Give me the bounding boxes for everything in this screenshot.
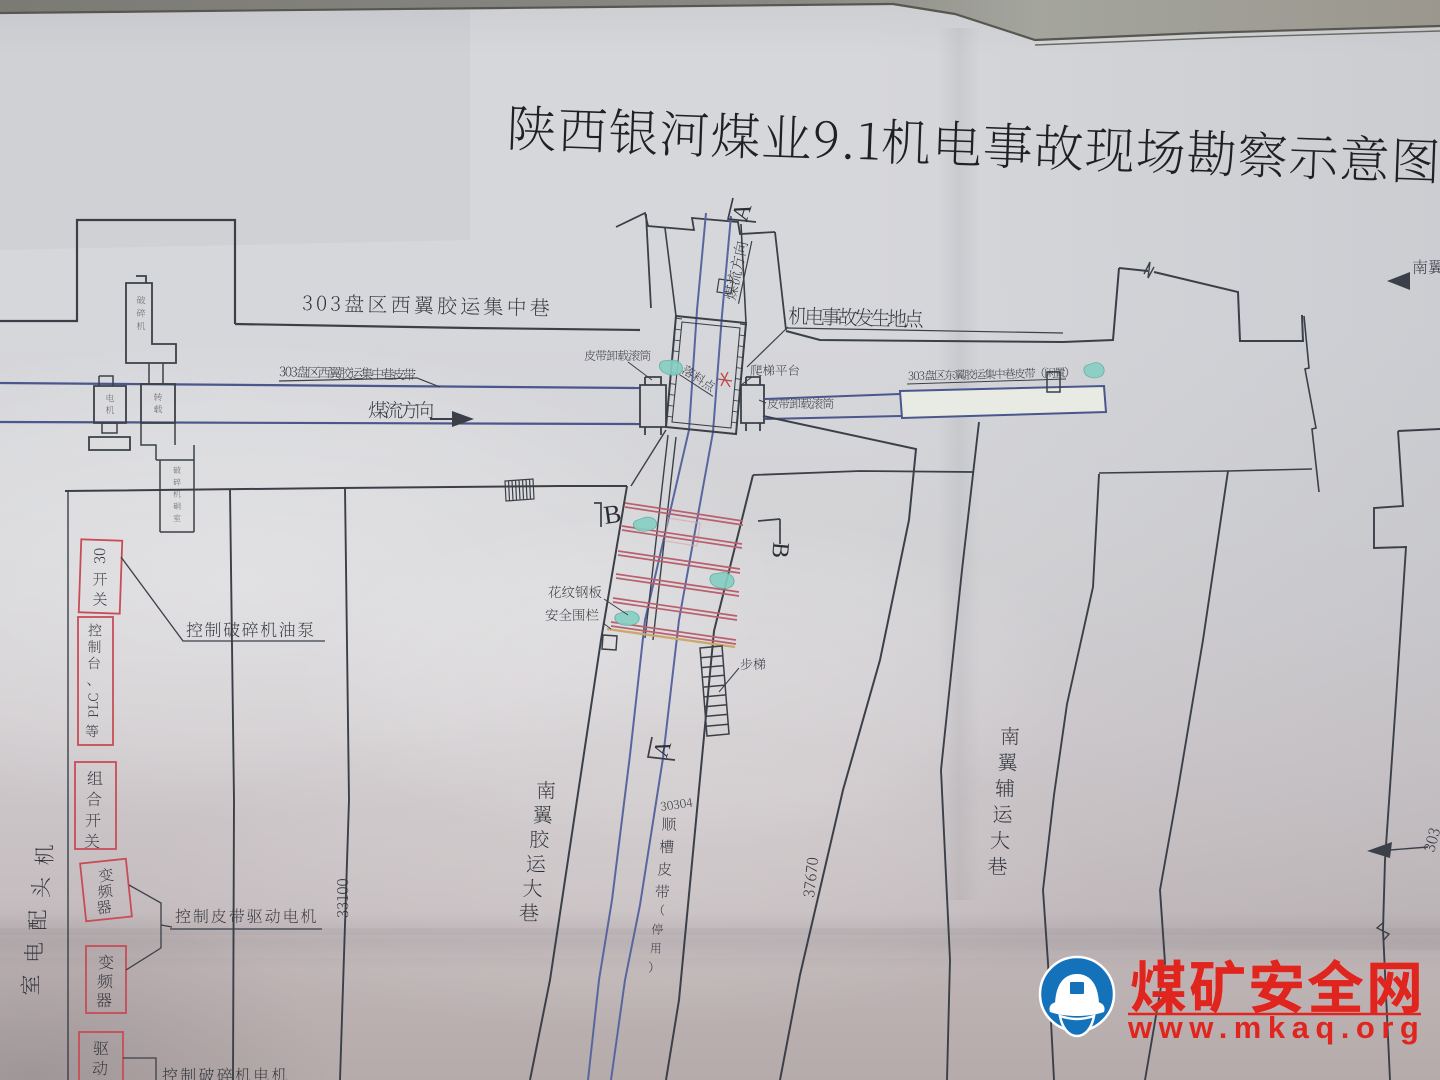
svg-text:www.mkaq.org: www.mkaq.org: [1127, 1010, 1425, 1045]
svg-text:B: B: [766, 541, 793, 559]
